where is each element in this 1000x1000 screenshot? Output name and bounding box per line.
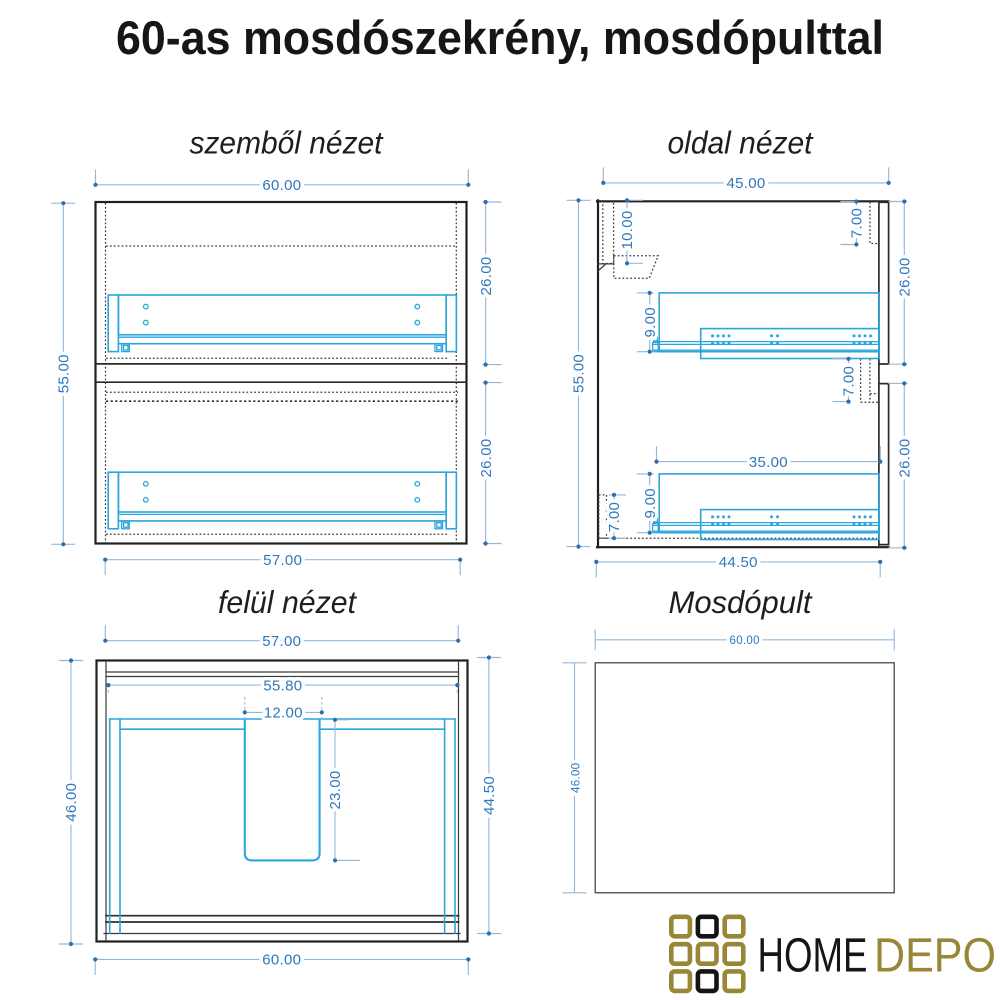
svg-text:44.50: 44.50 [481, 776, 498, 815]
svg-text:44.50: 44.50 [719, 554, 758, 571]
svg-text:HOME: HOME [758, 929, 868, 982]
svg-text:23.00: 23.00 [327, 770, 344, 809]
svg-text:szemből nézet: szemből nézet [190, 125, 384, 161]
svg-text:45.00: 45.00 [726, 175, 765, 192]
svg-text:35.00: 35.00 [749, 454, 788, 471]
svg-text:46.00: 46.00 [63, 783, 80, 822]
svg-text:12.00: 12.00 [264, 705, 303, 722]
svg-text:57.00: 57.00 [263, 552, 302, 569]
svg-text:46.00: 46.00 [571, 763, 583, 793]
svg-text:55.00: 55.00 [56, 354, 73, 393]
svg-text:7.00: 7.00 [606, 502, 623, 532]
svg-text:60.00: 60.00 [262, 952, 301, 969]
svg-text:26.00: 26.00 [897, 257, 914, 296]
svg-text:oldal nézet: oldal nézet [668, 125, 814, 161]
svg-text:9.00: 9.00 [642, 488, 659, 518]
svg-text:10.00: 10.00 [619, 210, 636, 249]
svg-text:9.00: 9.00 [642, 307, 659, 337]
svg-text:26.00: 26.00 [897, 438, 914, 477]
svg-text:felül nézet: felül nézet [218, 584, 357, 620]
svg-text:60.00: 60.00 [730, 635, 760, 647]
svg-text:60-as mosdószekrény, mosdópult: 60-as mosdószekrény, mosdópulttal [116, 11, 884, 64]
svg-text:7.00: 7.00 [849, 208, 866, 238]
svg-text:7.00: 7.00 [841, 366, 858, 396]
svg-text:DEPO: DEPO [874, 929, 996, 982]
svg-text:60.00: 60.00 [262, 177, 301, 194]
svg-text:55.80: 55.80 [263, 677, 302, 694]
svg-text:57.00: 57.00 [262, 633, 301, 650]
svg-text:26.00: 26.00 [478, 256, 495, 295]
svg-text:26.00: 26.00 [478, 438, 495, 477]
svg-text:Mosdópult: Mosdópult [669, 584, 813, 620]
svg-text:55.00: 55.00 [571, 354, 588, 393]
